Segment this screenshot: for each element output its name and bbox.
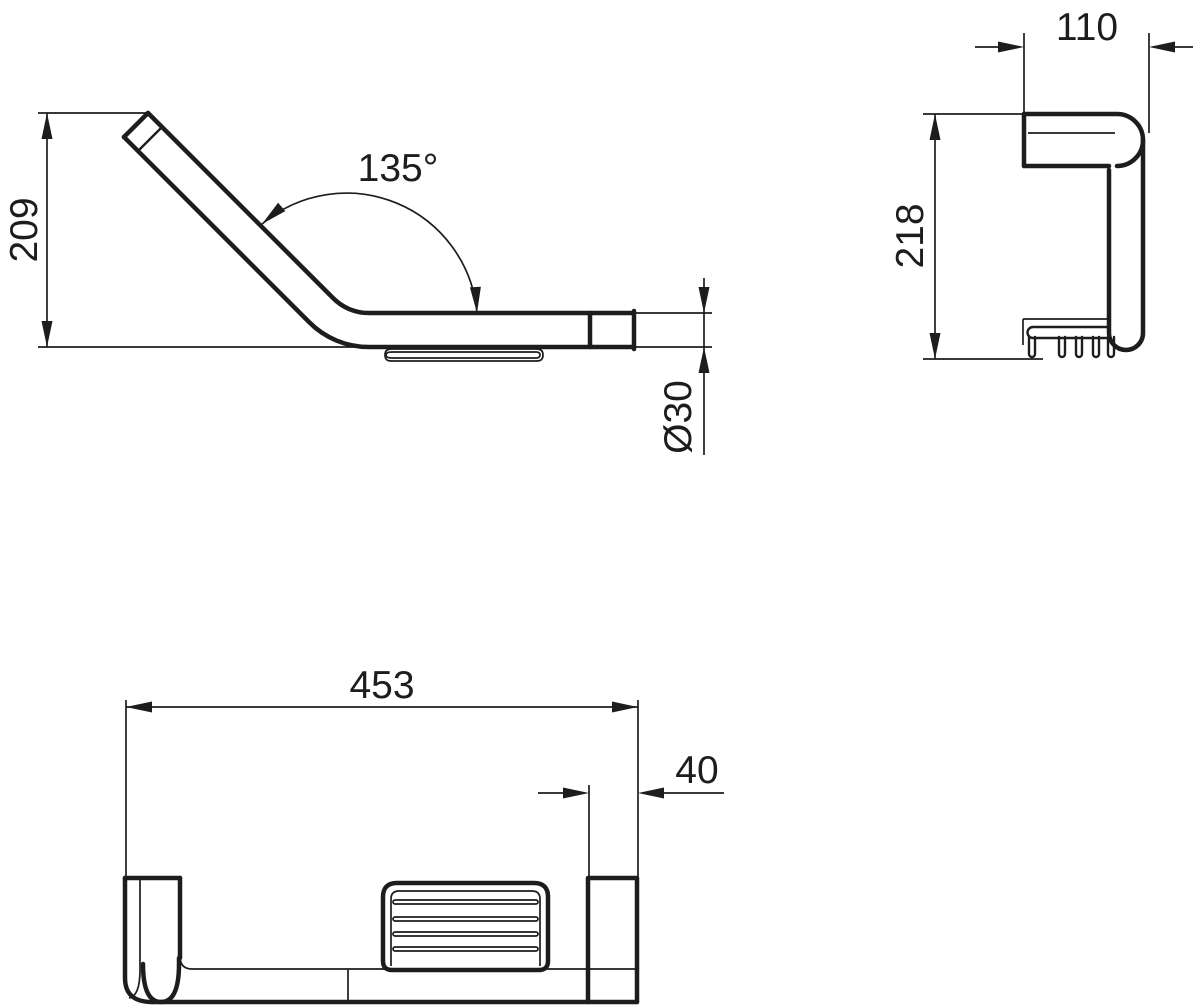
dimension-209: 209 — [3, 113, 385, 347]
dim-453-label: 453 — [349, 664, 414, 707]
dimension-40: 40 — [538, 749, 724, 878]
plan-view-left-end — [125, 878, 180, 1002]
dimension-218: 218 — [889, 114, 1043, 359]
dish-wire — [393, 917, 538, 921]
plan-view-soap-dish — [383, 883, 548, 970]
plan-view-right-mount — [588, 878, 637, 1002]
dim-dia30-label: Ø30 — [657, 380, 700, 454]
dim-218-label: 218 — [889, 203, 932, 268]
end-view-bar-outline — [1024, 114, 1143, 350]
dim-209-label: 209 — [3, 197, 46, 262]
dish-wire — [393, 947, 538, 951]
technical-drawing-page: 209 135° Ø30 — [0, 0, 1200, 1007]
plan-view: 453 40 — [125, 664, 724, 1002]
dimension-135deg: 135° — [262, 147, 481, 313]
technical-drawing: 209 135° Ø30 — [0, 0, 1200, 1007]
dish-wire — [393, 900, 538, 904]
end-view-dish-rack — [1023, 319, 1114, 357]
end-view: 110 218 — [889, 6, 1193, 359]
dish-wire — [393, 932, 538, 936]
dim-110-label: 110 — [1056, 6, 1118, 49]
dimension-453: 453 — [126, 664, 638, 878]
tube-end-cap-line — [138, 127, 162, 151]
side-view: 209 135° Ø30 — [3, 113, 712, 455]
side-view-soap-dish — [385, 349, 543, 361]
dim-40-label: 40 — [675, 749, 718, 792]
dimension-dia30: Ø30 — [636, 278, 712, 455]
plan-view-rail — [152, 956, 637, 1002]
dim-135-label: 135° — [358, 147, 439, 190]
